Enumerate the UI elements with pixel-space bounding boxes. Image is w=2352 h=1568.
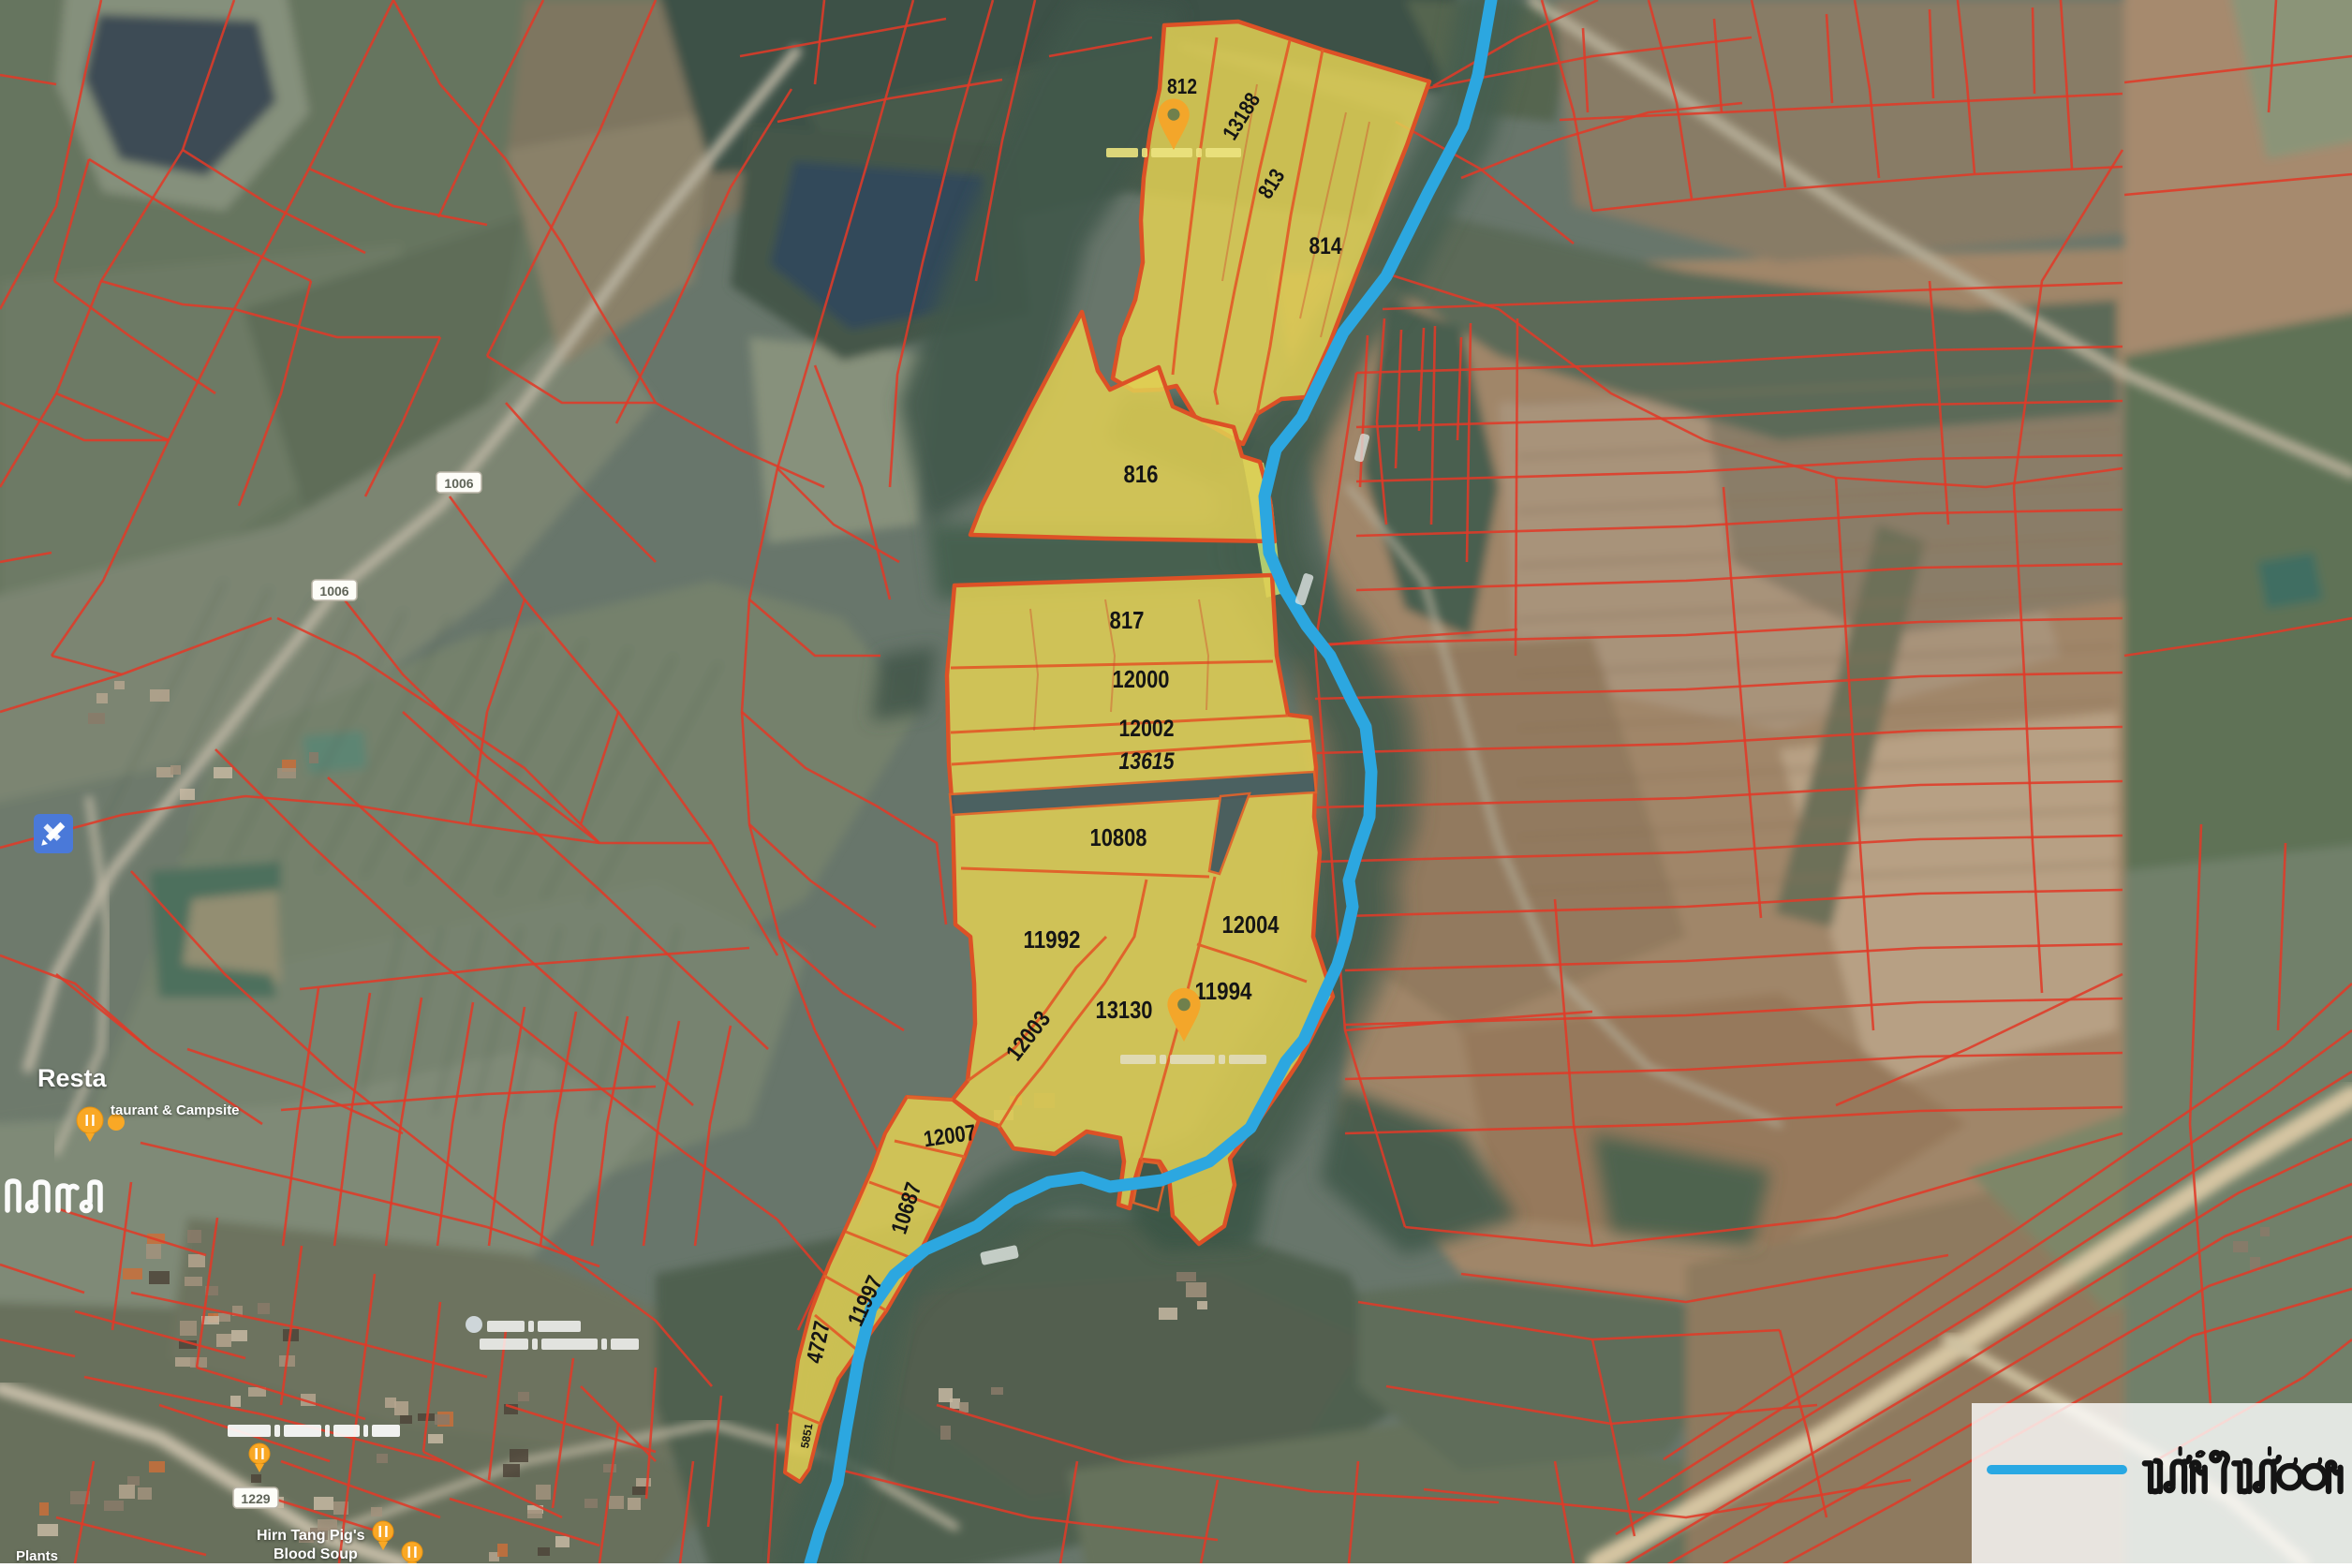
svg-text:814: 814 [1309, 233, 1342, 259]
svg-text:13615: 13615 [1119, 748, 1176, 775]
svg-text:10808: 10808 [1090, 823, 1147, 851]
svg-text:Hirn Tang Pig's: Hirn Tang Pig's [257, 1528, 365, 1544]
svg-text:812: 812 [1167, 74, 1197, 98]
svg-text:1006: 1006 [319, 584, 348, 599]
svg-text:Blood Soup: Blood Soup [274, 1546, 358, 1562]
svg-text:12000: 12000 [1113, 665, 1170, 693]
svg-text:Plants: Plants [16, 1548, 58, 1563]
svg-text:taurant & Campsite: taurant & Campsite [111, 1102, 240, 1118]
svg-text:12004: 12004 [1222, 910, 1280, 939]
svg-text:12002: 12002 [1119, 716, 1175, 742]
svg-text:13130: 13130 [1096, 996, 1153, 1024]
svg-text:817: 817 [1110, 606, 1145, 634]
svg-text:816: 816 [1124, 460, 1159, 488]
svg-text:11994: 11994 [1195, 977, 1252, 1005]
svg-text:1006: 1006 [444, 476, 473, 491]
svg-text:Resta: Resta [37, 1064, 108, 1092]
svg-text:11992: 11992 [1024, 925, 1081, 954]
svg-text:1229: 1229 [241, 1491, 270, 1506]
